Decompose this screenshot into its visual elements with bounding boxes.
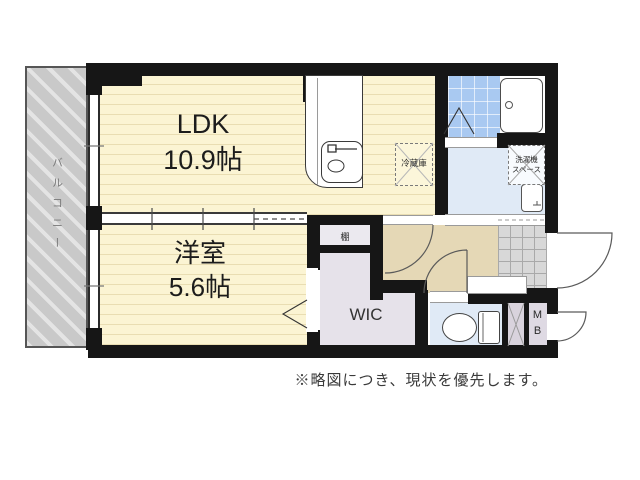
wall-right-lower	[547, 340, 558, 358]
wall-toilet-ps	[502, 303, 508, 346]
kitchen-counter-line	[317, 78, 318, 185]
ldk-size: 10.9帖	[118, 142, 288, 178]
meter-box-b: B	[528, 323, 547, 339]
shelf-label: 棚	[320, 230, 370, 243]
disclaimer-note: ※略図につき、現状を優先します。	[240, 369, 548, 390]
wic-door-opening	[306, 268, 318, 332]
meter-box-label: M B	[528, 307, 547, 339]
wall-bottom	[88, 345, 558, 358]
wall-shelf-bottom	[320, 245, 370, 253]
ldk-door-threshold	[383, 215, 433, 225]
toilet-tank	[478, 311, 500, 344]
pipe-space	[508, 303, 524, 346]
wall-hall-left	[370, 215, 383, 300]
meter-box-door-swing	[557, 312, 586, 341]
balcony-label: バルコニー	[49, 157, 65, 257]
wall-left-mid	[86, 206, 102, 230]
bathtub	[500, 78, 543, 133]
western-room-label: 洋室 5.6帖	[115, 236, 285, 304]
ldk-name: LDK	[118, 106, 288, 142]
bathroom-tile	[448, 75, 500, 137]
laundry-line2: スペース	[508, 165, 545, 175]
western-room-size: 5.6帖	[115, 270, 285, 304]
hallway-floor	[383, 225, 500, 282]
washbasin	[521, 184, 543, 212]
balcony-area: バルコニー	[25, 66, 88, 348]
ldk-label: LDK 10.9帖	[118, 106, 288, 178]
wall-right-upper	[545, 63, 558, 233]
wic-label: WIC	[322, 305, 410, 325]
wall-wic-right	[415, 290, 428, 348]
laundry-space-label: 洗濯機 スペース	[508, 155, 545, 175]
floor-plan: バルコニー	[0, 0, 640, 480]
western-room-window	[88, 230, 100, 328]
bath-door-threshold	[445, 137, 497, 148]
meter-box-m: M	[528, 307, 547, 323]
washroom-door-threshold	[445, 214, 545, 226]
ldk-window	[88, 95, 100, 206]
wic-floor	[320, 252, 373, 345]
laundry-line1: 洗濯機	[508, 155, 545, 165]
front-door-swing	[557, 233, 612, 288]
kitchen-sink	[321, 141, 363, 183]
western-room-name: 洋室	[115, 236, 285, 270]
toilet-door-threshold	[430, 291, 468, 303]
sliding-partition	[102, 212, 307, 225]
entry-step	[467, 276, 527, 294]
toilet-bowl	[442, 313, 477, 342]
wall-left-upper	[86, 63, 102, 95]
wall-shelf-left-lower	[307, 330, 320, 350]
refrigerator-label: 冷蔵庫	[395, 157, 433, 169]
